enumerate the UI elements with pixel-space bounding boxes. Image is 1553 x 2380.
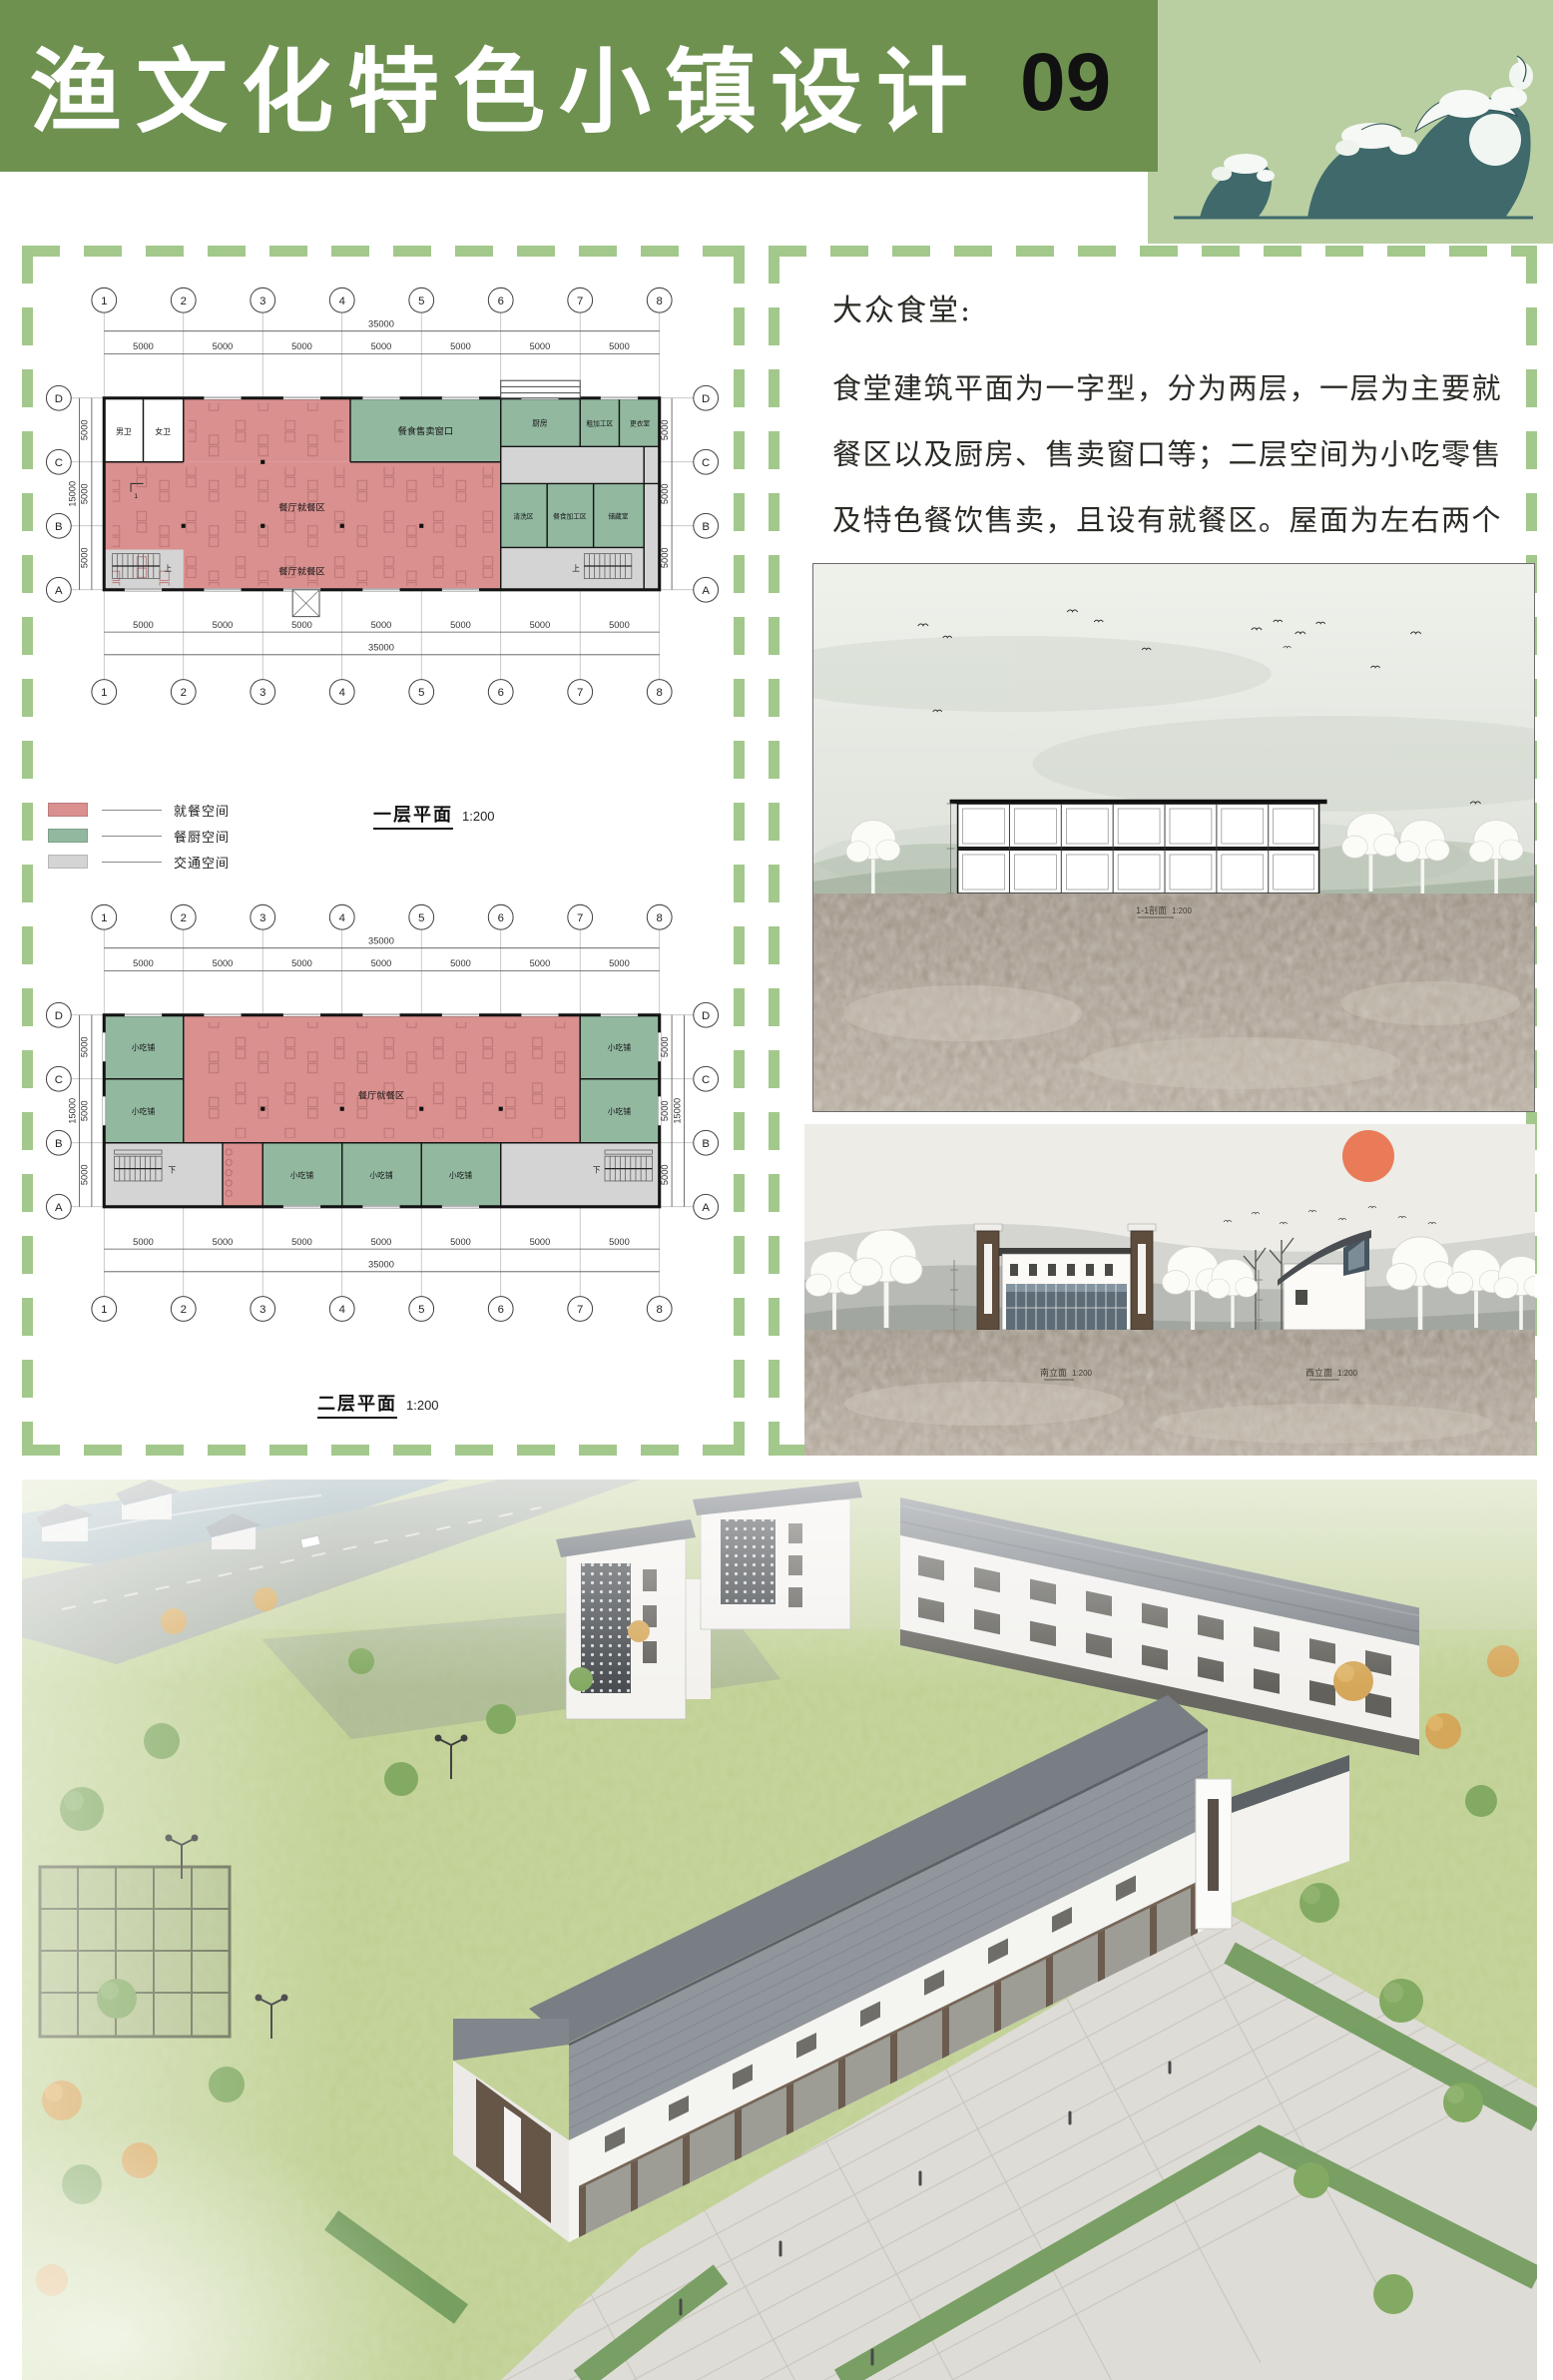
svg-text:2: 2 — [181, 912, 187, 924]
svg-text:3: 3 — [259, 1304, 265, 1316]
svg-text:5000: 5000 — [660, 483, 670, 504]
svg-text:5000: 5000 — [609, 1237, 630, 1247]
svg-text:5000: 5000 — [660, 547, 670, 568]
svg-text:5000: 5000 — [609, 341, 630, 351]
svg-text:5000: 5000 — [213, 341, 234, 351]
svg-text:5000: 5000 — [371, 958, 392, 968]
svg-text:上: 上 — [164, 564, 172, 573]
svg-text:D: D — [55, 1010, 63, 1022]
svg-text:35000: 35000 — [368, 936, 394, 946]
svg-text:4: 4 — [339, 1304, 345, 1316]
svg-text:15000: 15000 — [67, 481, 77, 507]
svg-text:下: 下 — [169, 1166, 177, 1175]
svg-text:5000: 5000 — [133, 958, 154, 968]
svg-text:6: 6 — [498, 912, 504, 924]
svg-text:2: 2 — [181, 687, 187, 699]
svg-text:餐厅就餐区: 餐厅就餐区 — [358, 1089, 404, 1100]
svg-text:C: C — [55, 457, 63, 469]
svg-text:A: A — [55, 585, 63, 597]
svg-text:5000: 5000 — [80, 483, 90, 504]
svg-text:5000: 5000 — [80, 1036, 90, 1057]
svg-text:5000: 5000 — [80, 1100, 90, 1121]
corridor-edge — [644, 483, 659, 589]
svg-text:C: C — [702, 457, 710, 469]
svg-text:C: C — [702, 1074, 710, 1086]
dash-border-top — [769, 246, 1537, 257]
svg-text:南立面1:200: 南立面1:200 — [1040, 1367, 1093, 1378]
svg-text:5000: 5000 — [530, 620, 551, 630]
page-number: 09 — [1020, 36, 1111, 130]
svg-text:2: 2 — [181, 296, 187, 307]
svg-text:5000: 5000 — [660, 1164, 670, 1185]
svg-text:小吃铺: 小吃铺 — [132, 1042, 155, 1052]
canteen-heading: 大众食堂: — [832, 286, 1491, 329]
svg-text:6: 6 — [498, 1304, 504, 1316]
svg-text:5000: 5000 — [660, 1100, 670, 1121]
svg-text:5: 5 — [418, 687, 424, 699]
svg-text:5000: 5000 — [213, 958, 234, 968]
svg-text:小吃铺: 小吃铺 — [608, 1106, 631, 1116]
svg-text:1: 1 — [134, 493, 138, 500]
svg-text:15000: 15000 — [67, 1098, 77, 1124]
svg-text:5000: 5000 — [133, 341, 154, 351]
dining-tables — [197, 1022, 568, 1138]
svg-text:B: B — [702, 521, 710, 533]
svg-text:5000: 5000 — [609, 620, 630, 630]
svg-text:A: A — [702, 1202, 710, 1214]
svg-text:6: 6 — [498, 296, 504, 307]
svg-text:5000: 5000 — [80, 547, 90, 568]
svg-text:D: D — [702, 393, 710, 405]
svg-text:D: D — [55, 393, 63, 405]
svg-text:4: 4 — [339, 912, 345, 924]
svg-text:男卫: 男卫 — [116, 427, 132, 436]
svg-text:5000: 5000 — [450, 620, 471, 630]
legend-label: 交通空间 — [174, 853, 230, 872]
svg-text:餐食加工区: 餐食加工区 — [553, 512, 587, 521]
svg-text:5: 5 — [418, 296, 424, 307]
aerial-render — [22, 1480, 1537, 2380]
svg-text:C: C — [55, 1074, 63, 1086]
svg-text:小吃铺: 小吃铺 — [290, 1170, 313, 1180]
poster-page: 渔文化特色小镇设计 09 — [0, 0, 1553, 2380]
svg-text:15000: 15000 — [672, 1098, 682, 1124]
svg-text:7: 7 — [577, 1304, 583, 1316]
svg-text:更衣室: 更衣室 — [630, 419, 650, 428]
svg-text:餐厅就餐区: 餐厅就餐区 — [278, 565, 324, 576]
svg-text:西立面1:200: 西立面1:200 — [1305, 1367, 1358, 1378]
svg-text:小吃铺: 小吃铺 — [369, 1170, 392, 1180]
svg-text:2: 2 — [181, 1304, 187, 1316]
svg-text:5000: 5000 — [660, 1036, 670, 1057]
svg-text:8: 8 — [657, 687, 663, 699]
legend-item-dining: 就餐空间 — [48, 797, 230, 823]
svg-text:4: 4 — [339, 687, 345, 699]
floor-plans-panel: 12345678 12345678 DCBA DCBA 35000 500050… — [22, 246, 745, 1456]
plan-legend: 就餐空间 餐厨空间 交通空间 — [48, 797, 230, 875]
svg-text:35000: 35000 — [368, 319, 394, 329]
wave-icon — [1166, 12, 1543, 234]
svg-text:1-1剖面1:200: 1-1剖面1:200 — [1136, 904, 1192, 915]
section-building — [947, 802, 1327, 893]
svg-text:5000: 5000 — [133, 1237, 154, 1247]
svg-text:3: 3 — [259, 687, 265, 699]
corridor-right — [501, 446, 660, 483]
svg-text:8: 8 — [657, 1304, 663, 1316]
svg-text:7: 7 — [577, 912, 583, 924]
svg-text:A: A — [702, 585, 710, 597]
svg-text:5000: 5000 — [450, 958, 471, 968]
svg-text:7: 7 — [577, 687, 583, 699]
svg-text:储藏室: 储藏室 — [608, 512, 628, 521]
plan1-title: 一层平面1:200 — [373, 801, 495, 827]
svg-text:1: 1 — [101, 912, 107, 924]
svg-text:5000: 5000 — [80, 419, 90, 440]
canteen-panel: 大众食堂: 食堂建筑平面为一字型，分为两层，一层为主要就 餐区以及厨房、售卖窗口… — [769, 246, 1537, 1456]
svg-text:5000: 5000 — [213, 1237, 234, 1247]
svg-text:5000: 5000 — [530, 341, 551, 351]
svg-text:粗加工区: 粗加工区 — [586, 419, 613, 428]
elevation-render: 南立面1:200 西立面1:200 — [804, 1124, 1535, 1456]
dining-tables-upper — [189, 403, 343, 459]
svg-text:小吃铺: 小吃铺 — [608, 1042, 631, 1052]
svg-text:3: 3 — [259, 296, 265, 307]
svg-text:B: B — [55, 1138, 63, 1150]
svg-text:餐厅就餐区: 餐厅就餐区 — [278, 501, 324, 512]
svg-text:5000: 5000 — [291, 620, 312, 630]
svg-text:餐食售卖窗口: 餐食售卖窗口 — [398, 425, 454, 436]
svg-text:5000: 5000 — [291, 958, 312, 968]
legend-swatch-dining — [48, 803, 88, 817]
svg-text:上: 上 — [572, 564, 580, 573]
svg-text:6: 6 — [498, 687, 504, 699]
svg-text:35000: 35000 — [368, 1260, 394, 1270]
svg-text:5000: 5000 — [660, 419, 670, 440]
section-render: 1-1剖面1:200 — [812, 563, 1535, 1112]
svg-text:8: 8 — [657, 296, 663, 307]
sun-icon — [1342, 1130, 1394, 1182]
legend-label: 就餐空间 — [174, 801, 230, 820]
svg-text:1: 1 — [101, 1304, 107, 1316]
porch-top — [501, 380, 580, 398]
svg-text:5000: 5000 — [291, 1237, 312, 1247]
svg-text:1: 1 — [101, 687, 107, 699]
plan1-rooms — [104, 398, 659, 590]
svg-text:小吃铺: 小吃铺 — [449, 1170, 472, 1180]
svg-text:5000: 5000 — [80, 1164, 90, 1185]
description-line: 食堂建筑平面为一字型，分为两层，一层为主要就 — [832, 355, 1491, 421]
svg-text:5000: 5000 — [450, 341, 471, 351]
legend-item-kitchen: 餐厨空间 — [48, 823, 230, 849]
svg-text:D: D — [702, 1010, 710, 1022]
svg-text:8: 8 — [657, 912, 663, 924]
dash-border-right — [734, 246, 745, 1456]
plan2-title: 二层平面1:200 — [317, 1390, 439, 1416]
svg-text:4: 4 — [339, 296, 345, 307]
svg-text:5000: 5000 — [450, 1237, 471, 1247]
svg-text:5000: 5000 — [133, 620, 154, 630]
svg-text:清洗区: 清洗区 — [513, 512, 533, 521]
svg-text:A: A — [55, 1202, 63, 1214]
svg-text:5000: 5000 — [291, 341, 312, 351]
legend-swatch-circulation — [48, 855, 88, 869]
svg-text:1: 1 — [101, 296, 107, 307]
floor-plan-1: 12345678 12345678 DCBA DCBA 35000 500050… — [32, 280, 733, 723]
svg-text:女卫: 女卫 — [155, 426, 171, 436]
svg-text:35000: 35000 — [368, 643, 394, 653]
svg-text:5: 5 — [418, 912, 424, 924]
dash-border-top — [22, 246, 745, 257]
svg-text:下: 下 — [593, 1166, 601, 1175]
legend-label: 餐厨空间 — [174, 827, 230, 846]
svg-text:5000: 5000 — [213, 620, 234, 630]
svg-text:5000: 5000 — [609, 958, 630, 968]
description-line: 及特色餐饮售卖，且设有就餐区。屋面为左右两个 — [832, 487, 1491, 553]
dining-connector — [223, 1143, 262, 1207]
svg-text:5000: 5000 — [371, 1237, 392, 1247]
svg-text:5000: 5000 — [371, 341, 392, 351]
svg-text:5000: 5000 — [530, 958, 551, 968]
svg-text:5000: 5000 — [371, 620, 392, 630]
page-title: 渔文化特色小镇设计 — [30, 18, 982, 151]
dash-border-left — [769, 246, 779, 1456]
dash-border-bottom — [22, 1445, 745, 1456]
svg-text:5: 5 — [418, 1304, 424, 1316]
legend-swatch-kitchen — [48, 829, 88, 843]
svg-text:厨房: 厨房 — [532, 418, 548, 428]
legend-item-circulation: 交通空间 — [48, 849, 230, 875]
svg-text:B: B — [55, 521, 63, 533]
svg-text:小吃铺: 小吃铺 — [132, 1106, 155, 1116]
floor-plan-2: 12345678 12345678 DCBA DCBA 35000 500050… — [32, 896, 733, 1340]
svg-text:B: B — [702, 1138, 710, 1150]
svg-text:7: 7 — [577, 296, 583, 307]
svg-text:3: 3 — [259, 912, 265, 924]
entry-bottom — [292, 590, 319, 617]
svg-text:5000: 5000 — [530, 1237, 551, 1247]
description-line: 餐区以及厨房、售卖窗口等；二层空间为小吃零售 — [832, 421, 1491, 487]
